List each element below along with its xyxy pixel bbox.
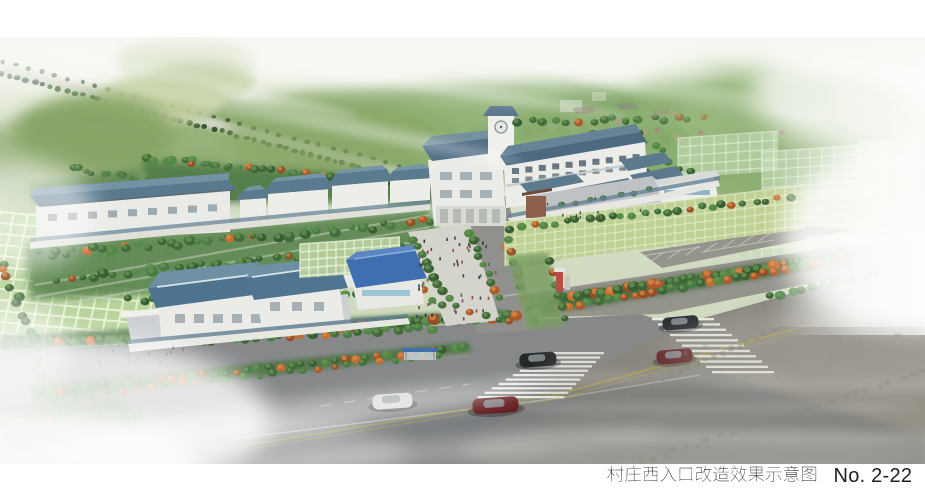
svg-text:No. 2-22: No. 2-22 — [834, 465, 913, 487]
